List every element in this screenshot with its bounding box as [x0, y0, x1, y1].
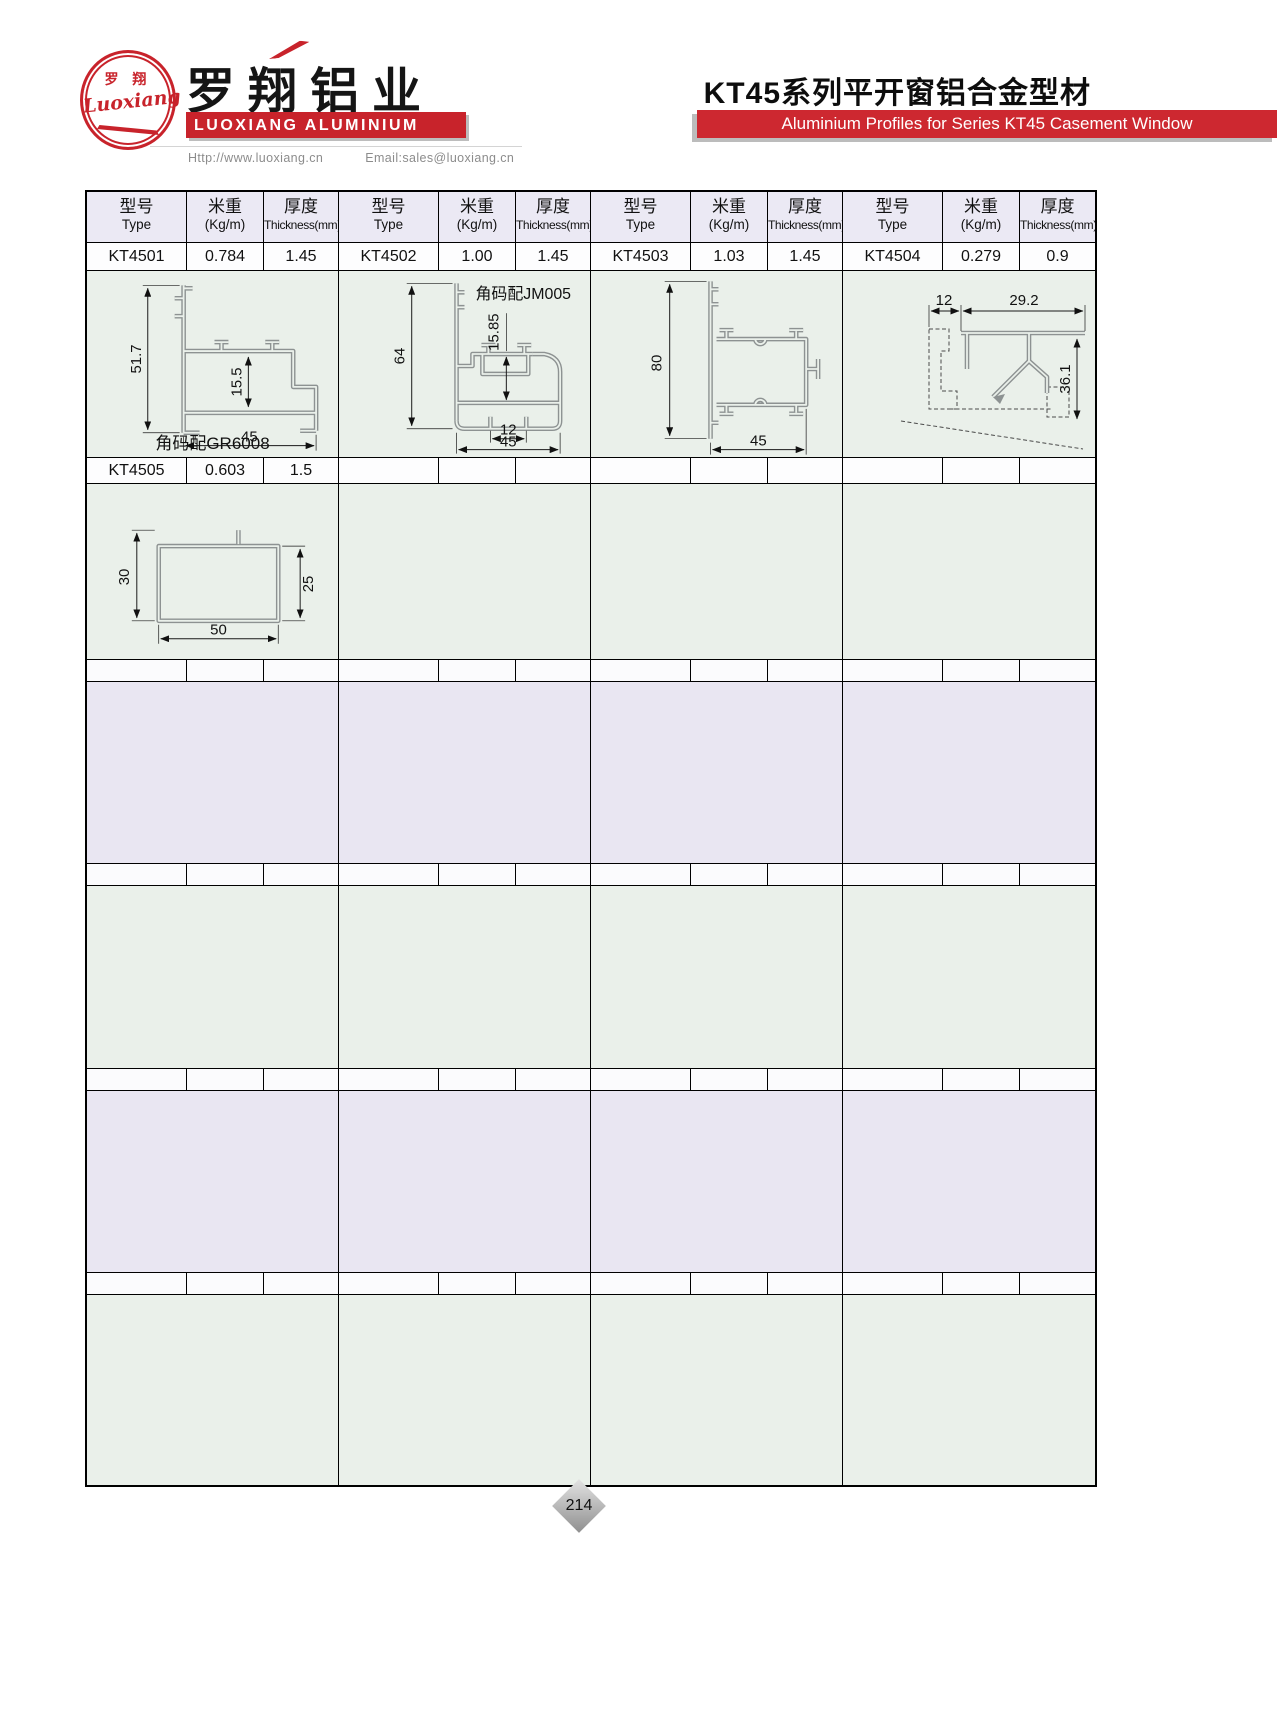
table-cell-type: KT4502	[339, 243, 439, 271]
table-cell-empty	[843, 458, 943, 484]
table-cell-empty	[1020, 458, 1095, 484]
drawing-cell-empty	[843, 484, 1095, 660]
kt4503-profile-drawing: 80 45	[591, 271, 842, 457]
header-thickness: 厚度Thickness(mm)	[768, 192, 843, 243]
table-cell-empty	[439, 458, 516, 484]
header-thickness: 厚度Thickness(mm)	[264, 192, 339, 243]
page-title: KT45系列平开窗铝合金型材	[704, 68, 1091, 112]
header-type: 型号Type	[87, 192, 187, 243]
svg-text:12: 12	[936, 292, 953, 309]
svg-text:36.1: 36.1	[1057, 364, 1074, 393]
kt4504-profile-drawing: 12 29.2 36.1	[843, 271, 1095, 457]
catalog-page: 罗 翔 Luoxiang 罗翔铝业 LUOXIANG ALUMINIUM Htt…	[0, 0, 1277, 1721]
table-cell-thickness: 1.45	[264, 243, 339, 271]
table-cell-empty	[339, 458, 439, 484]
header-type: 型号Type	[843, 192, 943, 243]
logo-swoosh-icon	[97, 125, 159, 135]
svg-text:50: 50	[210, 622, 227, 639]
svg-text:64: 64	[392, 348, 409, 365]
kt4505-profile-drawing: 30 25 50	[87, 484, 338, 659]
header-weight: 米重(Kg/m)	[691, 192, 768, 243]
table-cell-thickness: 1.5	[264, 458, 339, 484]
company-logo: 罗 翔 Luoxiang	[80, 50, 176, 150]
drawing-band-empty	[87, 886, 1095, 1069]
table-cell-type: KT4501	[87, 243, 187, 271]
svg-text:80: 80	[649, 355, 666, 372]
header-thickness: 厚度Thickness(mm)	[1020, 192, 1095, 243]
website-url: Http://www.luoxiang.cn	[188, 151, 323, 165]
company-name-en: LUOXIANG ALUMINIUM	[186, 112, 466, 138]
table-row-empty	[87, 864, 1095, 886]
kt4502-corner-note: 角码配JM005	[475, 285, 571, 303]
table-cell-empty	[516, 458, 591, 484]
drawing-cell-kt4502: 角码配JM005 64 15.85 12 45	[339, 271, 591, 458]
table-cell-weight: 1.00	[439, 243, 516, 271]
page-subtitle: Aluminium Profiles for Series KT45 Casem…	[697, 110, 1277, 138]
table-cell-thickness: 0.9	[1020, 243, 1095, 271]
table-cell-weight: 0.603	[187, 458, 264, 484]
logo-script-text: Luoxiang	[82, 86, 174, 117]
drawing-cell-empty	[591, 484, 843, 660]
profile-table: 型号Type 米重(Kg/m) 厚度Thickness(mm) 型号Type 米…	[85, 190, 1097, 1487]
svg-text:25: 25	[300, 576, 317, 593]
svg-text:45: 45	[750, 433, 767, 450]
table-row-empty	[87, 660, 1095, 682]
table-cell-weight: 0.279	[943, 243, 1020, 271]
header-divider	[150, 146, 522, 147]
logo-cn-text: 罗 翔	[83, 69, 173, 89]
table-cell-type: KT4505	[87, 458, 187, 484]
table-cell-thickness: 1.45	[516, 243, 591, 271]
drawing-band: 51.7 15.5 45 角码配GR6008	[87, 271, 1095, 458]
drawing-cell-kt4504: 12 29.2 36.1	[843, 271, 1095, 458]
drawing-band: 30 25 50	[87, 484, 1095, 660]
email-address: Email:sales@luoxiang.cn	[365, 151, 514, 165]
drawing-cell-kt4503: 80 45	[591, 271, 843, 458]
svg-text:29.2: 29.2	[1009, 292, 1038, 309]
table-cell-empty	[591, 458, 691, 484]
table-row: KT4501 0.784 1.45 KT4502 1.00 1.45 KT450…	[87, 243, 1095, 271]
drawing-band-empty	[87, 1091, 1095, 1273]
table-row-empty	[87, 1273, 1095, 1295]
svg-text:15.85: 15.85	[485, 313, 502, 350]
contact-line: Http://www.luoxiang.cnEmail:sales@luoxia…	[188, 151, 556, 165]
drawing-cell-empty	[339, 484, 591, 660]
svg-text:30: 30	[116, 569, 133, 586]
header-weight: 米重(Kg/m)	[439, 192, 516, 243]
page-number: 214	[554, 1497, 604, 1515]
table-cell-type: KT4503	[591, 243, 691, 271]
table-cell-weight: 1.03	[691, 243, 768, 271]
table-cell-empty	[768, 458, 843, 484]
table-cell-thickness: 1.45	[768, 243, 843, 271]
drawing-cell-kt4505: 30 25 50	[87, 484, 339, 660]
svg-text:45: 45	[500, 434, 517, 451]
header-type: 型号Type	[591, 192, 691, 243]
table-cell-empty	[943, 458, 1020, 484]
kt4501-corner-note: 角码配GR6008	[87, 429, 338, 454]
table-row: KT4505 0.603 1.5	[87, 458, 1095, 484]
table-row-empty	[87, 1069, 1095, 1091]
header-thickness: 厚度Thickness(mm)	[516, 192, 591, 243]
header-weight: 米重(Kg/m)	[943, 192, 1020, 243]
header-type: 型号Type	[339, 192, 439, 243]
kt4502-profile-drawing: 角码配JM005 64 15.85 12 45	[339, 271, 590, 457]
table-header-row: 型号Type 米重(Kg/m) 厚度Thickness(mm) 型号Type 米…	[87, 192, 1095, 243]
table-cell-weight: 0.784	[187, 243, 264, 271]
drawing-band-empty	[87, 1295, 1095, 1485]
drawing-cell-kt4501: 51.7 15.5 45 角码配GR6008	[87, 271, 339, 458]
svg-text:15.5: 15.5	[228, 367, 245, 396]
svg-text:51.7: 51.7	[128, 344, 145, 373]
header-weight: 米重(Kg/m)	[187, 192, 264, 243]
drawing-band-empty	[87, 682, 1095, 864]
table-cell-type: KT4504	[843, 243, 943, 271]
table-cell-empty	[691, 458, 768, 484]
